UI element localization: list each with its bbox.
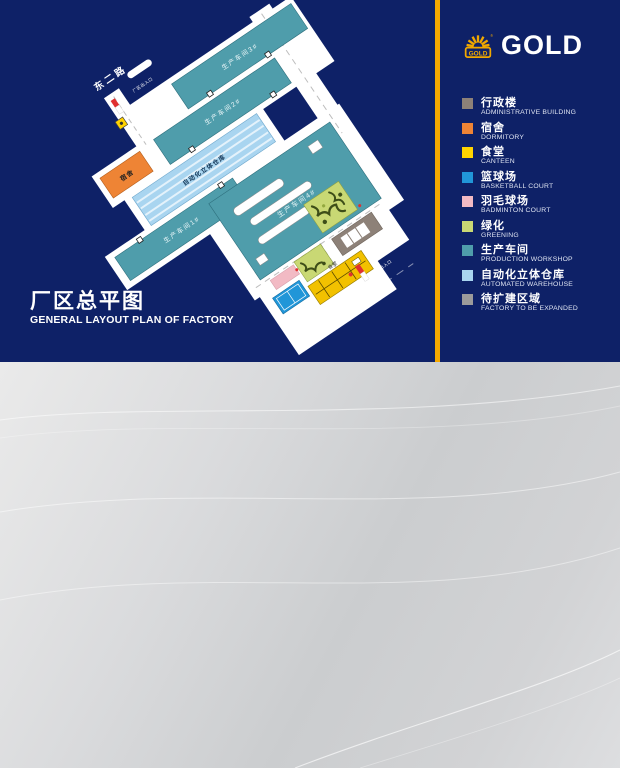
east-road-label: 东二路 [92,63,130,94]
legend-en: ADMINISTRATIVE BUILDING [481,109,576,117]
svg-text:GOLD: GOLD [469,50,488,57]
brand-logo-top: GOLD ® GOLD [462,31,583,60]
legend-zh: 羽毛球场 [481,195,551,207]
legend-en: BADMINTON COURT [481,207,551,215]
legend-zh: 自动化立体仓库 [481,269,573,281]
legend-zh: 待扩建区域 [481,293,578,305]
legend-item-badminton: 羽毛球场 BADMINTON COURT [462,195,614,215]
legend-item-greening: 绿化 GREENING [462,220,614,240]
legend-en: AUTOMATED WAREHOUSE [481,281,573,289]
silver-panel: GOLD ® GOLD [0,362,620,768]
legend-swatch-admin [462,98,473,109]
brand-wordmark-top: GOLD [501,32,583,59]
legend-swatch-greening [462,221,473,232]
page-title-en: GENERAL LAYOUT PLAN OF FACTORY [30,314,234,327]
legend-swatch-workshop [462,245,473,256]
legend-en: CANTEEN [481,158,515,166]
svg-text:®: ® [490,34,493,38]
swoosh-lines-curves [0,362,620,768]
legend-item-expansion: 待扩建区域 FACTORY TO BE EXPANDED [462,293,614,313]
legend-zh: 生产车间 [481,244,573,256]
legend-swatch-badminton [462,196,473,207]
legend-zh: 食堂 [481,146,515,158]
legend-item-admin: 行政楼 ADMINISTRATIVE BUILDING [462,97,614,117]
legend: 行政楼 ADMINISTRATIVE BUILDING 宿舍 DORMITORY… [462,97,614,318]
legend-swatch-basketball [462,172,473,183]
legend-item-canteen: 食堂 CANTEEN [462,146,614,166]
page-title: 厂区总平图 GENERAL LAYOUT PLAN OF FACTORY [30,290,234,327]
layout-plan-panel: 生产车间3# 生产车间2# 自动化立体仓库 生产车间1# 宿 [0,0,620,362]
legend-en: GREENING [481,232,519,240]
legend-zh: 篮球场 [481,171,553,183]
legend-swatch-warehouse [462,270,473,281]
legend-zh: 宿舍 [481,122,524,134]
legend-zh: 行政楼 [481,97,576,109]
legend-swatch-expansion [462,294,473,305]
legend-en: PRODUCTION WORKSHOP [481,256,573,264]
legend-zh: 绿化 [481,220,519,232]
gold-crown-icon: GOLD ® [462,31,494,60]
legend-item-workshop: 生产车间 PRODUCTION WORKSHOP [462,244,614,264]
legend-item-warehouse: 自动化立体仓库 AUTOMATED WAREHOUSE [462,269,614,289]
legend-swatch-canteen [462,147,473,158]
legend-en: FACTORY TO BE EXPANDED [481,305,578,313]
legend-swatch-dormitory [462,123,473,134]
legend-item-dormitory: 宿舍 DORMITORY [462,122,614,142]
legend-en: DORMITORY [481,134,524,142]
panel-divider [435,0,440,362]
legend-item-basketball: 篮球场 BASKETBALL COURT [462,171,614,191]
page-title-zh: 厂区总平图 [30,290,234,314]
legend-en: BASKETBALL COURT [481,183,553,191]
brochure-page: 生产车间3# 生产车间2# 自动化立体仓库 生产车间1# 宿 [0,0,620,768]
